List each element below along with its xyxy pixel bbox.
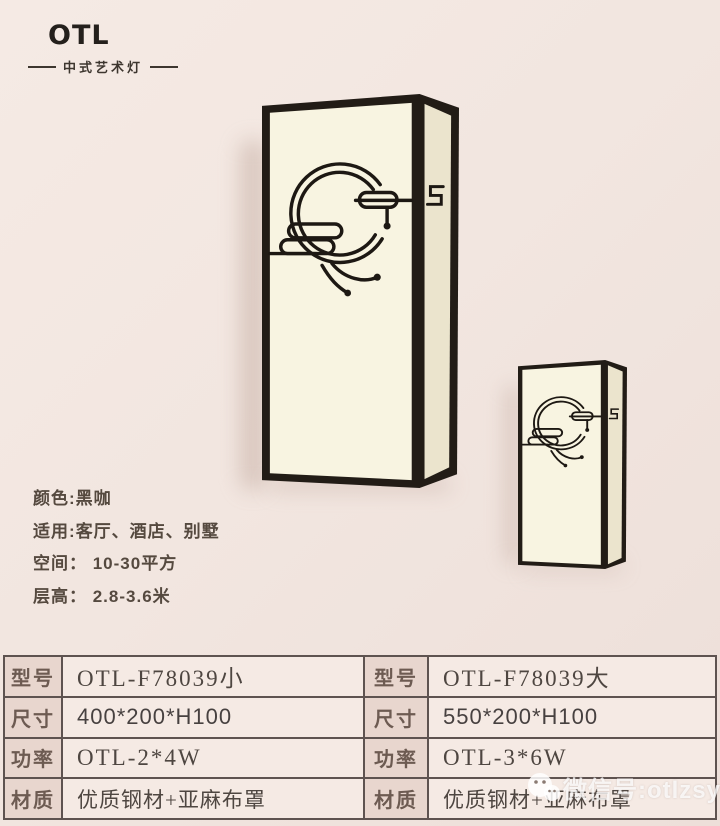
spec-label-model-large: 型号 <box>365 657 427 696</box>
product-poster: OTL 中式艺术灯 <box>0 0 720 826</box>
spec-value-model-large: OTL-F78039大 <box>429 657 715 696</box>
tagline-text: 中式艺术灯 <box>63 57 143 76</box>
watermark-text: 微信号:otlzsysd <box>563 770 720 805</box>
tagline-dash-right <box>150 66 178 68</box>
spec-value-power-small: OTL-2*4W <box>63 739 363 778</box>
watermark: 微信号:otlzsysd <box>527 770 720 805</box>
spec-label-power-large: 功率 <box>365 739 427 778</box>
brand-logo: OTL <box>28 20 178 51</box>
spec-value-model-small: OTL-F78039小 <box>63 657 363 696</box>
spec-label-material-small: 材质 <box>5 779 61 818</box>
spec-label-material-large: 材质 <box>365 779 427 818</box>
spec-label-size-large: 尺寸 <box>365 698 427 737</box>
spec-label-size-small: 尺寸 <box>5 698 61 737</box>
spec-label-model-small: 型号 <box>5 657 61 696</box>
tagline-dash-left <box>28 66 56 68</box>
wall-lamp-small <box>518 360 627 569</box>
wall-lamp-large <box>262 94 459 488</box>
info-ceiling-height: 层高： 2.8-3.6米 <box>33 581 220 614</box>
brand-tagline: 中式艺术灯 <box>28 57 178 76</box>
wechat-icon <box>527 772 561 804</box>
product-info: 颜色:黑咖 适用:客厅、酒店、别墅 空间： 10-30平方 层高： 2.8-3.… <box>33 483 220 613</box>
spec-value-size-small: 400*200*H100 <box>63 698 363 737</box>
spec-value-material-small: 优质钢材+亚麻布罩 <box>63 779 363 818</box>
spec-label-power-small: 功率 <box>5 739 61 778</box>
info-area: 空间： 10-30平方 <box>33 548 220 581</box>
spec-value-size-large: 550*200*H100 <box>429 698 715 737</box>
info-usage: 适用:客厅、酒店、别墅 <box>33 516 220 549</box>
brand-header: OTL 中式艺术灯 <box>28 20 178 76</box>
info-color: 颜色:黑咖 <box>33 483 220 516</box>
